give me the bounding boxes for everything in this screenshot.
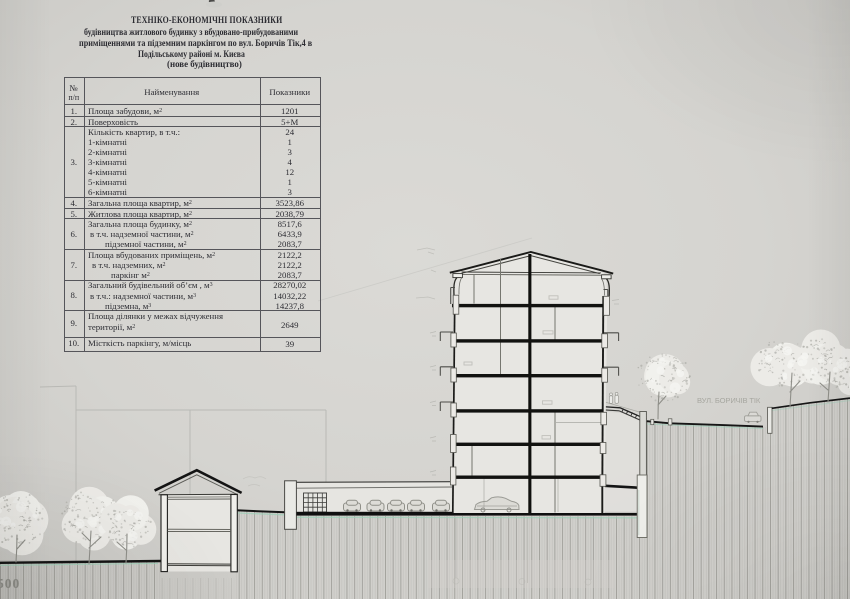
svg-text:500: 500 (0, 576, 20, 591)
svg-text:ВУЛ. БОРИЧІВ ТІК: ВУЛ. БОРИЧІВ ТІК (697, 396, 761, 405)
